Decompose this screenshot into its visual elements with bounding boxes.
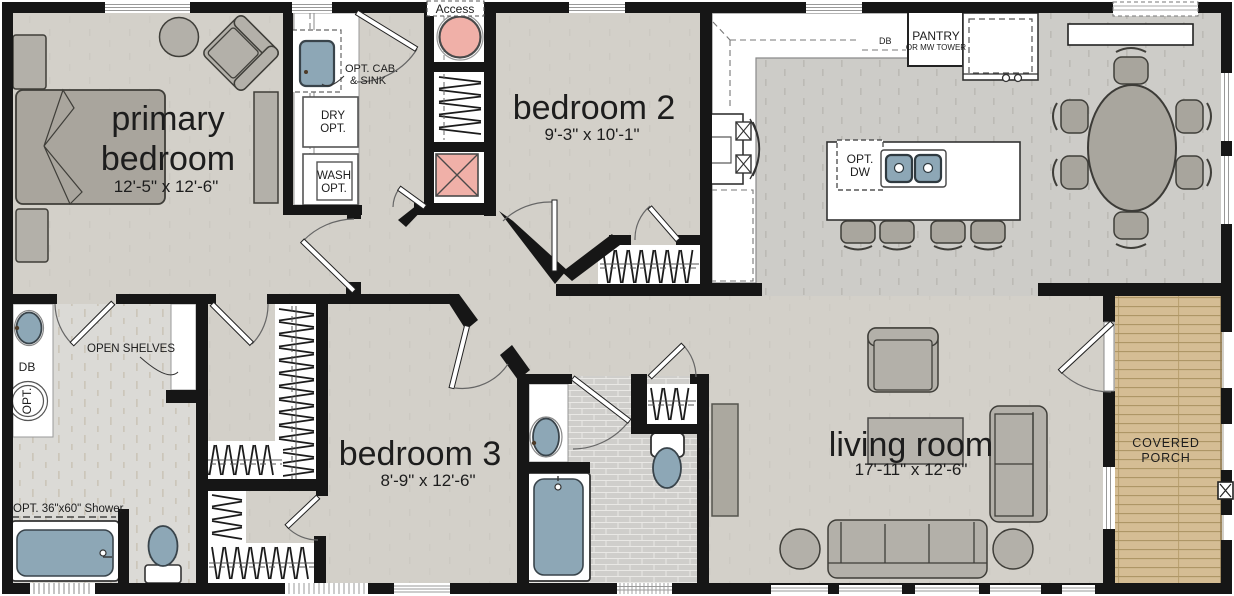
svg-text:17'-11" x 12'-6": 17'-11" x 12'-6" [855, 460, 968, 479]
svg-text:living room: living room [829, 426, 993, 464]
svg-text:DB: DB [879, 36, 892, 46]
svg-text:OPEN SHELVES: OPEN SHELVES [87, 343, 175, 355]
svg-text:PANTRY: PANTRY [912, 29, 960, 43]
svg-text:DB: DB [19, 360, 36, 374]
svg-text:DRY: DRY [321, 110, 345, 122]
svg-text:Access: Access [436, 2, 475, 16]
svg-text:OR MW TOWER: OR MW TOWER [906, 43, 966, 52]
svg-text:OPT.: OPT. [320, 123, 346, 135]
svg-text:bedroom 3: bedroom 3 [339, 435, 502, 473]
svg-text:& SINK: & SINK [350, 75, 387, 87]
svg-text:OPT.: OPT. [321, 183, 347, 195]
svg-text:8'-9" x 12'-6": 8'-9" x 12'-6" [380, 471, 475, 490]
svg-text:PORCH: PORCH [1141, 451, 1190, 465]
svg-text:bedroom: bedroom [101, 140, 235, 178]
svg-text:COVERED: COVERED [1132, 436, 1199, 450]
svg-text:bedroom 2: bedroom 2 [513, 89, 676, 127]
svg-text:WASH: WASH [317, 170, 351, 182]
svg-text:primary: primary [111, 100, 224, 138]
svg-text:9'-3" x 10'-1": 9'-3" x 10'-1" [544, 125, 639, 144]
svg-text:OPT.: OPT. [847, 152, 874, 166]
svg-text:OPT. 36"x60" Shower: OPT. 36"x60" Shower [13, 503, 124, 515]
svg-text:12'-5" x 12'-6": 12'-5" x 12'-6" [114, 177, 219, 196]
svg-text:OPT.: OPT. [20, 388, 34, 415]
svg-text:OPT. CAB.: OPT. CAB. [345, 63, 398, 75]
svg-text:DW: DW [850, 165, 871, 179]
